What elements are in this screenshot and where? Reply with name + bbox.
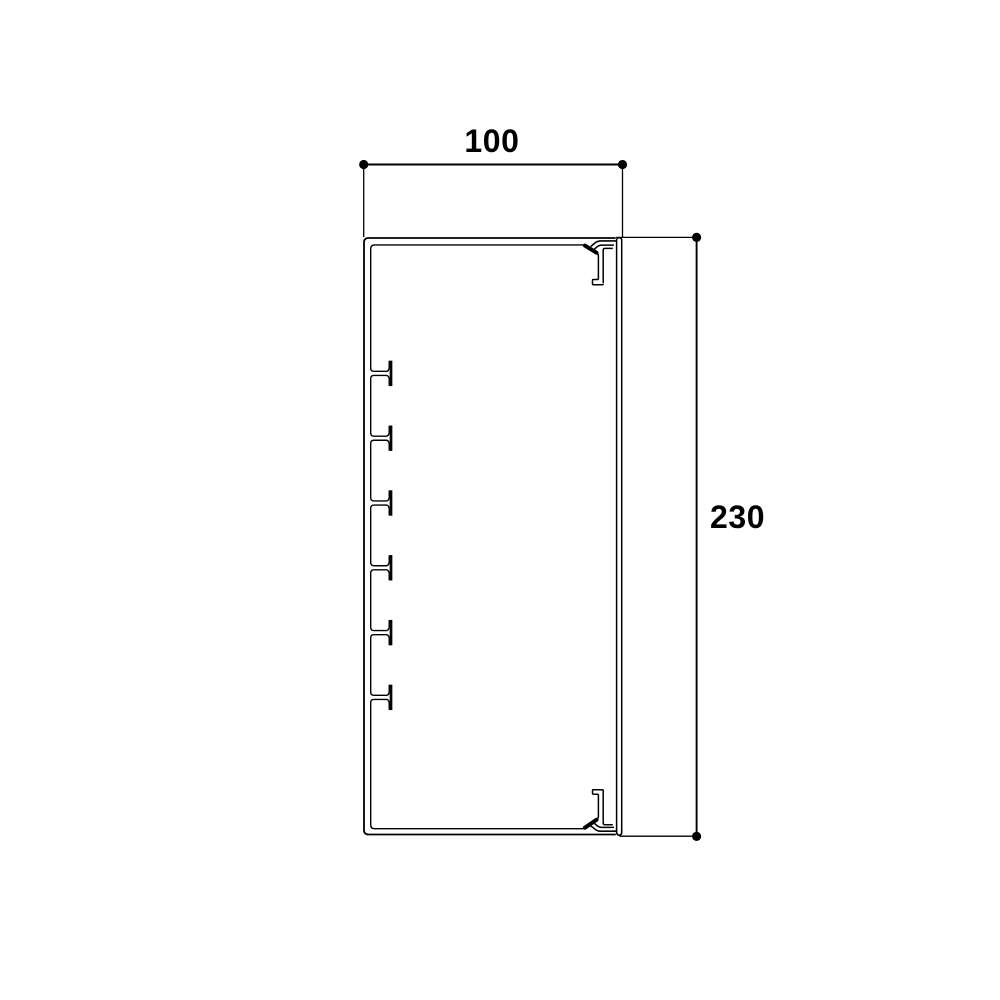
svg-text:100: 100 [464, 123, 519, 159]
svg-text:230: 230 [710, 499, 765, 535]
